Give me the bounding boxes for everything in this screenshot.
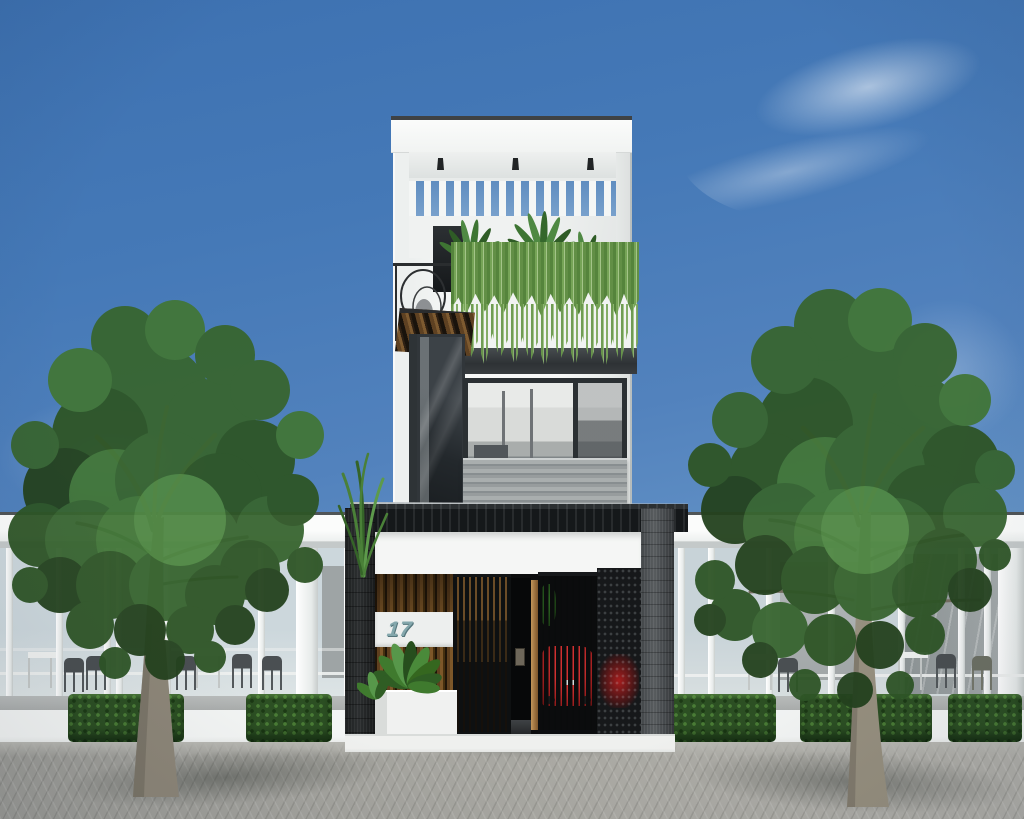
interior-picture [515,648,525,666]
gate-panel-left [453,574,511,736]
door-edge [531,580,538,730]
glass-door [417,334,465,506]
roof-slab [391,120,632,153]
tree-foliage [688,288,1015,708]
downlight [587,158,594,170]
threshold [345,734,675,752]
interior-floor [511,720,531,734]
house: 17 [345,108,690,756]
door-sidelight [409,334,417,506]
perforated-screen [597,568,641,740]
tree-foliage [8,300,324,680]
tree-left [5,285,350,800]
perforation-pattern [597,568,641,740]
downlight [437,158,444,170]
downlight [512,158,519,170]
entry-plant [357,624,461,720]
gate-opening [511,578,531,734]
gate-panel-main [538,572,597,740]
gate-slats [538,572,597,740]
entry-canopy [350,502,688,532]
scene: 17 [0,0,1024,819]
entry-column-right [641,508,674,742]
tree-right [675,270,1024,815]
